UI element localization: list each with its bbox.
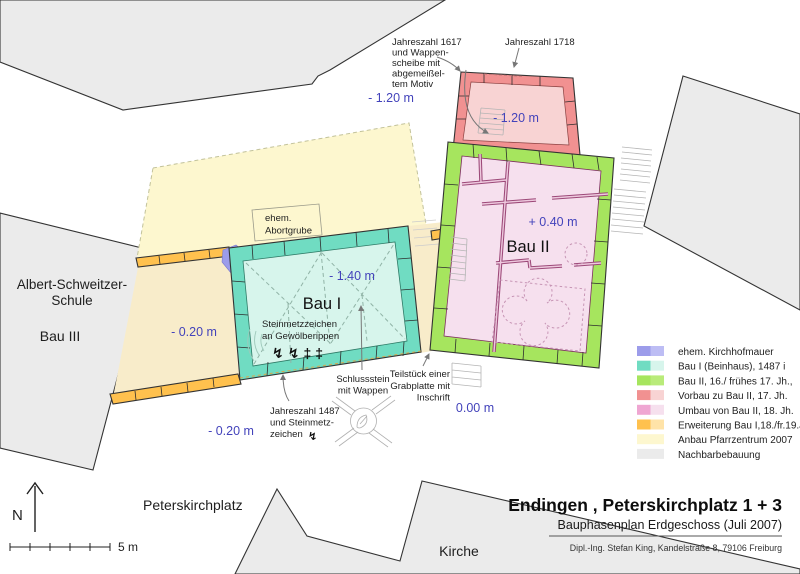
north-label: N: [12, 507, 23, 524]
legend-swatch-dark: [637, 375, 651, 385]
annotation-line: tem Motiv: [392, 79, 433, 90]
bauphasenplan-page: Jahreszahl 1617 und Wappen- scheibe mit …: [0, 0, 800, 574]
level-courtyard: 0.00 m: [456, 401, 494, 415]
annotation-line: und Steinmetz-: [270, 418, 334, 429]
legend: ehem. Kirchhofmauer Bau I (Beinhaus), 14…: [637, 346, 800, 461]
label-school-line2: Schule: [51, 293, 92, 308]
legend-row: Anbau Pfarrzentrum 2007: [637, 434, 793, 446]
scale-bar: [10, 543, 110, 551]
legend-label: Bau II, 16./ frühes 17. Jh.,: [678, 376, 793, 387]
legend-swatch-light: [651, 375, 665, 385]
legend-label: ehem. Kirchhofmauer: [678, 347, 774, 358]
legend-row: Bau II, 16./ frühes 17. Jh.,: [637, 375, 793, 387]
scale-label: 5 m: [118, 540, 138, 554]
label-school-line1: Albert-Schweitzer-: [17, 277, 127, 292]
legend-swatch-dark: [637, 405, 651, 415]
legend-swatch-light: [651, 405, 665, 415]
annotation-line: Steinmetzzeichen: [262, 319, 337, 330]
arrow-grabplatte: [423, 354, 429, 366]
annotation-jz1718: Jahreszahl 1718: [505, 37, 575, 48]
steinmetz-marks: ↯↯‡‡: [272, 345, 327, 361]
legend-label: Erweiterung Bau I,18./fr.19.Jh.: [678, 421, 800, 432]
legend-row: Bau I (Beinhaus), 1487 i: [637, 361, 785, 373]
legend-row: Nachbarbebauung: [637, 449, 760, 461]
steinmetz-mark-small: ↯: [308, 431, 317, 443]
annotation-schlussstein: Schlussstein mit Wappen: [336, 374, 389, 397]
label-bau1: Bau I: [303, 295, 342, 313]
level-vorbau: - 1.20 m: [493, 111, 539, 125]
label-bau2: Bau II: [506, 238, 549, 256]
legend-swatch-light: [651, 420, 665, 430]
legend-swatch-dark: [637, 346, 651, 356]
legend-row: Erweiterung Bau I,18./fr.19.Jh.: [637, 420, 800, 432]
legend-label: Bau I (Beinhaus), 1487 i: [678, 362, 785, 373]
legend-swatch-dark: [637, 390, 651, 400]
level-erweiterung: - 0.20 m: [171, 325, 217, 339]
schlussstein-drawing: [332, 396, 395, 447]
annotation-line: mit Wappen: [338, 386, 388, 397]
legend-swatch-light: [651, 434, 665, 444]
annotation-line: ehem.: [265, 213, 291, 224]
east-stairs-upper: [620, 147, 652, 183]
legend-swatch-light: [651, 449, 665, 459]
label-square: Peterskirchplatz: [143, 497, 243, 513]
annotation-grabplatte: Teilstück einer Grabplatte mit Inschrift: [390, 369, 451, 404]
annotation-line: Jahreszahl 1487: [270, 406, 340, 417]
annotation-line: Abortgrube: [265, 226, 312, 237]
east-stairs-lower: [611, 189, 646, 234]
page-title: Endingen , Peterskirchplatz 1 + 3: [508, 495, 782, 515]
annotation-line: Grabplatte mit: [390, 381, 450, 392]
legend-swatch-dark: [637, 420, 651, 430]
arrow-jz1487: [283, 375, 289, 401]
level-vorbau-west: - 1.20 m: [368, 91, 414, 105]
site-plan-svg: Jahreszahl 1617 und Wappen- scheibe mit …: [0, 0, 800, 574]
annotation-line: an Gewölberippen: [262, 331, 339, 342]
annotation-jz1487: Jahreszahl 1487 und Steinmetz- zeichen ↯: [270, 406, 340, 443]
neighbor-building-east: [644, 76, 800, 310]
annotation-line: abgemeißel-: [392, 69, 445, 80]
annotation-line: scheibe mit: [392, 58, 440, 69]
legend-label: Umbau von Bau II, 18. Jh.: [678, 406, 794, 417]
legend-label: Vorbau zu Bau II, 17. Jh.: [678, 391, 788, 402]
annotation-line: Teilstück einer: [390, 369, 450, 380]
legend-swatch-light: [651, 346, 665, 356]
annotation-line: Inschrift: [417, 393, 451, 404]
north-arrow-icon: [27, 483, 43, 532]
legend-label: Nachbarbebauung: [678, 450, 760, 461]
legend-row: Umbau von Bau II, 18. Jh.: [637, 405, 794, 417]
level-erweiterung-south: - 0.20 m: [208, 424, 254, 438]
label-bau3: Bau III: [40, 328, 80, 344]
level-bau2: + 0.40 m: [529, 215, 578, 229]
arrow-jz1718: [514, 48, 519, 67]
legend-swatch-dark: [637, 449, 651, 459]
south-stairs: [452, 363, 481, 387]
level-bau1: - 1.40 m: [329, 269, 375, 283]
legend-row: Vorbau zu Bau II, 17. Jh.: [637, 390, 788, 402]
legend-swatch-light: [651, 361, 665, 371]
legend-label: Anbau Pfarrzentrum 2007: [678, 435, 793, 446]
annotation-line: und Wappen-: [392, 48, 449, 59]
label-church: Kirche: [439, 543, 479, 559]
annotation-line: zeichen: [270, 429, 303, 440]
annotation-line: Jahreszahl 1617: [392, 37, 462, 48]
legend-swatch-dark: [637, 434, 651, 444]
legend-swatch-light: [651, 390, 665, 400]
legend-swatch-dark: [637, 361, 651, 371]
credit-line: Dipl.-Ing. Stefan King, Kandelstraße 8, …: [570, 543, 782, 553]
legend-row: ehem. Kirchhofmauer: [637, 346, 774, 358]
annotation-line: Schlussstein: [336, 374, 389, 385]
page-subtitle: Bauphasenplan Erdgeschoss (Juli 2007): [558, 518, 782, 532]
